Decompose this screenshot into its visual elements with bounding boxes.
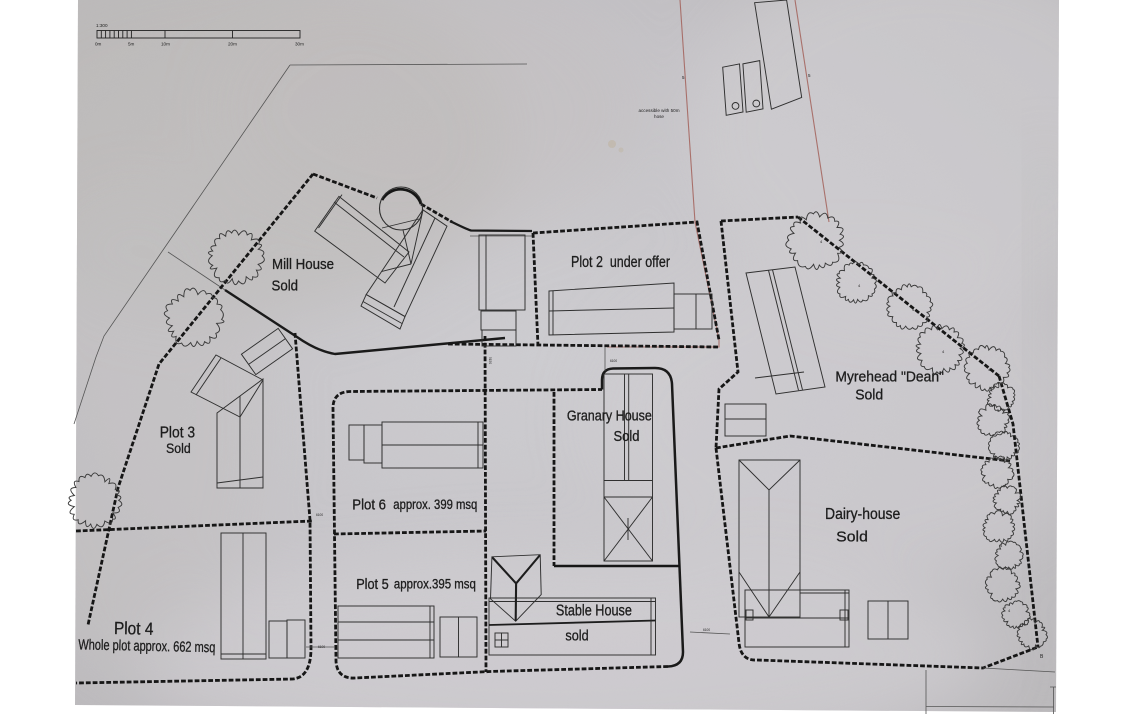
- svg-text:Dairy-house: Dairy-house: [825, 506, 900, 523]
- svg-text:approx. 399 msq: approx. 399 msq: [393, 497, 477, 512]
- svg-text:Whole plot approx. 662 msq: Whole plot approx. 662 msq: [78, 637, 215, 656]
- svg-text:Sold: Sold: [272, 278, 299, 294]
- svg-text:approx.395 msq: approx.395 msq: [394, 577, 476, 592]
- svg-text:10m: 10m: [161, 42, 170, 47]
- svg-text:Granary House: Granary House: [567, 409, 652, 425]
- svg-text:Plot 2 under offer: Plot 2 under offer: [571, 254, 670, 271]
- svg-text:Sold: Sold: [836, 529, 868, 546]
- svg-text:Plot 5: Plot 5: [356, 577, 389, 593]
- svg-text:Myrehead "Dean": Myrehead "Dean": [835, 370, 944, 386]
- svg-text:6100: 6100: [316, 513, 323, 517]
- svg-text:Sold: Sold: [614, 429, 640, 445]
- svg-text:Plot 6: Plot 6: [352, 498, 386, 514]
- svg-text:6100: 6100: [318, 645, 325, 649]
- svg-text:Sold: Sold: [855, 387, 883, 403]
- svg-text:5150: 5150: [488, 357, 492, 364]
- svg-text:1:300: 1:300: [96, 23, 108, 28]
- svg-text:Plot 3: Plot 3: [160, 424, 195, 441]
- svg-text:Sold: Sold: [166, 440, 191, 456]
- svg-text:Mill House: Mill House: [272, 257, 334, 273]
- svg-text:Plot 4: Plot 4: [114, 618, 154, 639]
- svg-text:0m: 0m: [95, 42, 102, 47]
- svg-text:sold: sold: [565, 628, 588, 645]
- svg-text:6100: 6100: [610, 359, 617, 363]
- svg-text:hose: hose: [654, 114, 664, 119]
- svg-text:6100: 6100: [703, 628, 710, 632]
- svg-text:Stable House: Stable House: [556, 603, 632, 620]
- svg-text:20m: 20m: [228, 42, 237, 47]
- svg-text:5m: 5m: [128, 42, 135, 47]
- svg-text:30m: 30m: [295, 42, 304, 47]
- svg-text:accessible with 50m: accessible with 50m: [638, 108, 679, 113]
